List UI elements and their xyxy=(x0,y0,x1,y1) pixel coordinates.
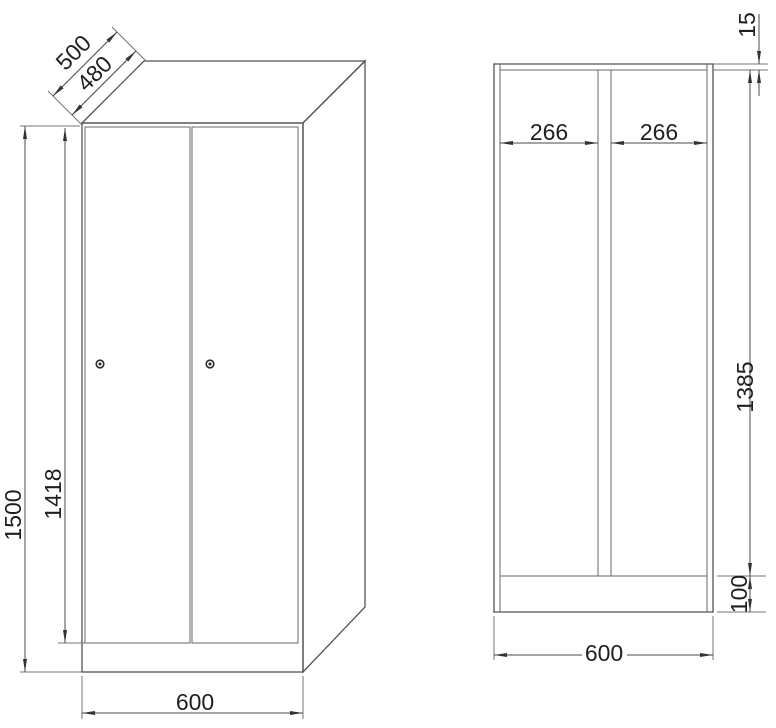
locker-technical-drawing: 500 480 1500 1418 600 xyxy=(0,0,776,728)
locker-door-left xyxy=(85,127,190,643)
drawing-canvas: 500 480 1500 1418 600 xyxy=(0,0,776,728)
locker-door-right xyxy=(192,127,298,643)
dim-label-door-height: 1418 xyxy=(40,468,66,519)
dim-label-top-panel: 15 xyxy=(734,12,760,38)
side-face xyxy=(303,61,365,672)
view-front-section: 266 266 15 1385 100 60 xyxy=(494,12,768,666)
view-3d-locker: 500 480 1500 1418 600 xyxy=(0,27,365,719)
dim-label-compartment-left: 266 xyxy=(530,119,568,145)
dim-compartments: 266 266 xyxy=(500,119,707,145)
lock-icon-right xyxy=(206,360,214,368)
dim-width-section: 600 xyxy=(494,616,713,666)
section-body xyxy=(494,64,713,612)
dim-label-compartment-right: 266 xyxy=(640,119,678,145)
dim-label-height-total: 1500 xyxy=(0,489,26,540)
dim-top-panel: 15 xyxy=(713,12,768,96)
dim-depth: 500 480 xyxy=(48,27,146,125)
dim-inner-height: 1385 xyxy=(717,70,766,576)
dim-base-height: 100 xyxy=(717,575,766,613)
lock-icon-left xyxy=(96,360,104,368)
dim-width-3d: 600 xyxy=(82,676,303,719)
dim-heights: 1500 1418 xyxy=(0,126,86,672)
locker-body-3d xyxy=(82,61,365,672)
dim-label-width-3d: 600 xyxy=(176,689,214,715)
top-face xyxy=(82,61,365,123)
dim-label-inner-height: 1385 xyxy=(732,361,758,412)
dim-label-width-section: 600 xyxy=(585,640,623,666)
dim-label-base-height: 100 xyxy=(726,575,752,613)
locker-doors xyxy=(85,127,298,643)
